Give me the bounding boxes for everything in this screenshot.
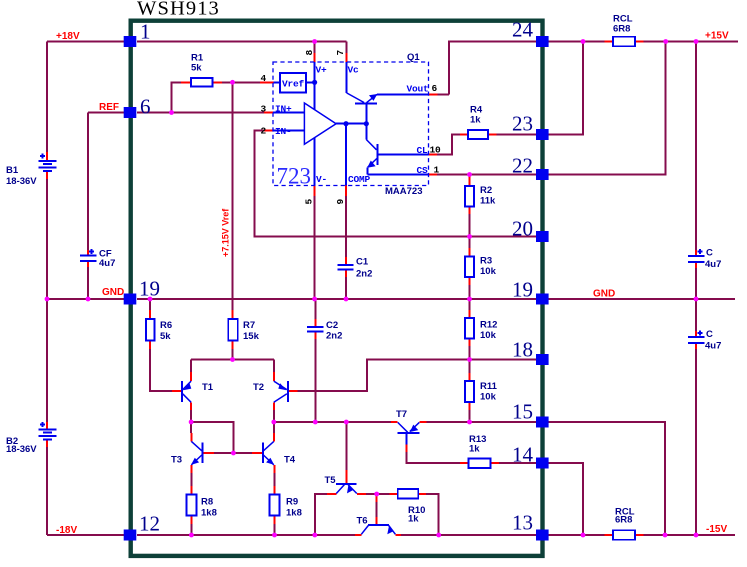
- svg-text:V-: V-: [316, 174, 327, 185]
- svg-text:4: 4: [261, 73, 267, 84]
- svg-text:-15V: -15V: [706, 524, 727, 535]
- svg-text:T4: T4: [284, 455, 296, 466]
- svg-text:18-36V: 18-36V: [6, 444, 37, 455]
- svg-text:GND: GND: [102, 287, 124, 298]
- svg-text:1k: 1k: [470, 115, 481, 126]
- svg-text:11k: 11k: [480, 196, 496, 207]
- svg-text:CL: CL: [417, 145, 429, 156]
- svg-text:WSH913: WSH913: [137, 0, 220, 20]
- svg-text:3: 3: [261, 104, 267, 115]
- svg-text:19: 19: [512, 278, 533, 302]
- svg-text:R9: R9: [286, 497, 298, 508]
- svg-text:T5: T5: [325, 475, 337, 486]
- svg-text:IN+: IN+: [275, 104, 292, 115]
- svg-text:GND: GND: [593, 289, 615, 300]
- svg-text:12: 12: [139, 512, 160, 536]
- svg-text:2n2: 2n2: [326, 331, 342, 342]
- svg-text:723: 723: [277, 164, 312, 189]
- svg-text:V+: V+: [316, 65, 328, 76]
- svg-text:4u7: 4u7: [705, 341, 721, 352]
- svg-text:R3: R3: [480, 256, 492, 267]
- svg-text:1k8: 1k8: [286, 508, 302, 519]
- svg-text:1k: 1k: [408, 514, 419, 525]
- svg-text:Q1: Q1: [407, 52, 420, 63]
- svg-text:1k: 1k: [469, 444, 480, 455]
- svg-text:20: 20: [512, 217, 533, 241]
- svg-text:1k8: 1k8: [201, 508, 217, 519]
- svg-text:Vout: Vout: [407, 84, 429, 95]
- svg-text:6: 6: [432, 83, 438, 94]
- svg-text:CS: CS: [417, 165, 429, 176]
- svg-text:MAA723: MAA723: [385, 186, 423, 197]
- svg-text:5k: 5k: [191, 63, 202, 74]
- svg-text:4u7: 4u7: [705, 259, 721, 270]
- svg-text:+15V: +15V: [705, 31, 729, 42]
- svg-text:R2: R2: [480, 185, 492, 196]
- svg-text:4u7: 4u7: [99, 258, 115, 269]
- svg-text:+18V: +18V: [56, 31, 80, 42]
- svg-text:6: 6: [140, 95, 151, 119]
- svg-text:15k: 15k: [243, 331, 260, 342]
- svg-text:22: 22: [512, 154, 533, 178]
- svg-text:8: 8: [304, 50, 315, 56]
- svg-text:6R8: 6R8: [615, 515, 632, 526]
- svg-text:10: 10: [430, 145, 442, 156]
- svg-text:7: 7: [335, 50, 346, 56]
- svg-text:24: 24: [512, 18, 534, 42]
- svg-text:18: 18: [512, 338, 533, 362]
- svg-text:C: C: [706, 248, 713, 259]
- svg-text:18-36V: 18-36V: [6, 176, 37, 187]
- svg-text:6R8: 6R8: [613, 24, 630, 35]
- svg-text:14: 14: [512, 443, 534, 467]
- svg-text:T3: T3: [171, 455, 182, 466]
- svg-text:R12: R12: [480, 320, 497, 331]
- svg-text:15: 15: [512, 400, 533, 424]
- svg-text:1: 1: [434, 165, 440, 176]
- svg-text:Vc: Vc: [348, 65, 360, 76]
- svg-text:T2: T2: [253, 382, 264, 393]
- svg-text:2: 2: [261, 126, 267, 137]
- svg-text:COMP: COMP: [348, 174, 371, 185]
- svg-text:R11: R11: [480, 381, 498, 392]
- svg-text:R6: R6: [160, 320, 172, 331]
- svg-text:IN-: IN-: [275, 126, 292, 137]
- svg-text:Vref: Vref: [282, 79, 305, 90]
- svg-text:T1: T1: [202, 382, 214, 393]
- svg-text:5k: 5k: [160, 331, 171, 342]
- svg-text:1: 1: [140, 20, 151, 44]
- svg-text:10k: 10k: [480, 330, 497, 341]
- svg-text:5: 5: [304, 199, 315, 205]
- svg-text:R8: R8: [201, 497, 213, 508]
- svg-text:R7: R7: [243, 320, 255, 331]
- svg-text:-18V: -18V: [56, 525, 77, 536]
- svg-text:C: C: [706, 329, 713, 340]
- svg-text:C2: C2: [326, 320, 338, 331]
- svg-text:T6: T6: [357, 516, 368, 527]
- svg-text:9: 9: [335, 199, 346, 205]
- svg-text:T7: T7: [396, 409, 407, 420]
- svg-text:19: 19: [139, 277, 160, 301]
- svg-text:+7.15V Vref: +7.15V Vref: [221, 208, 231, 257]
- svg-text:REF: REF: [99, 102, 119, 113]
- svg-text:C1: C1: [356, 257, 369, 268]
- svg-text:13: 13: [512, 511, 533, 535]
- svg-text:10k: 10k: [480, 266, 497, 277]
- svg-text:23: 23: [512, 112, 533, 136]
- svg-text:B1: B1: [6, 165, 19, 176]
- svg-text:10k: 10k: [480, 392, 497, 403]
- svg-text:2n2: 2n2: [356, 269, 372, 280]
